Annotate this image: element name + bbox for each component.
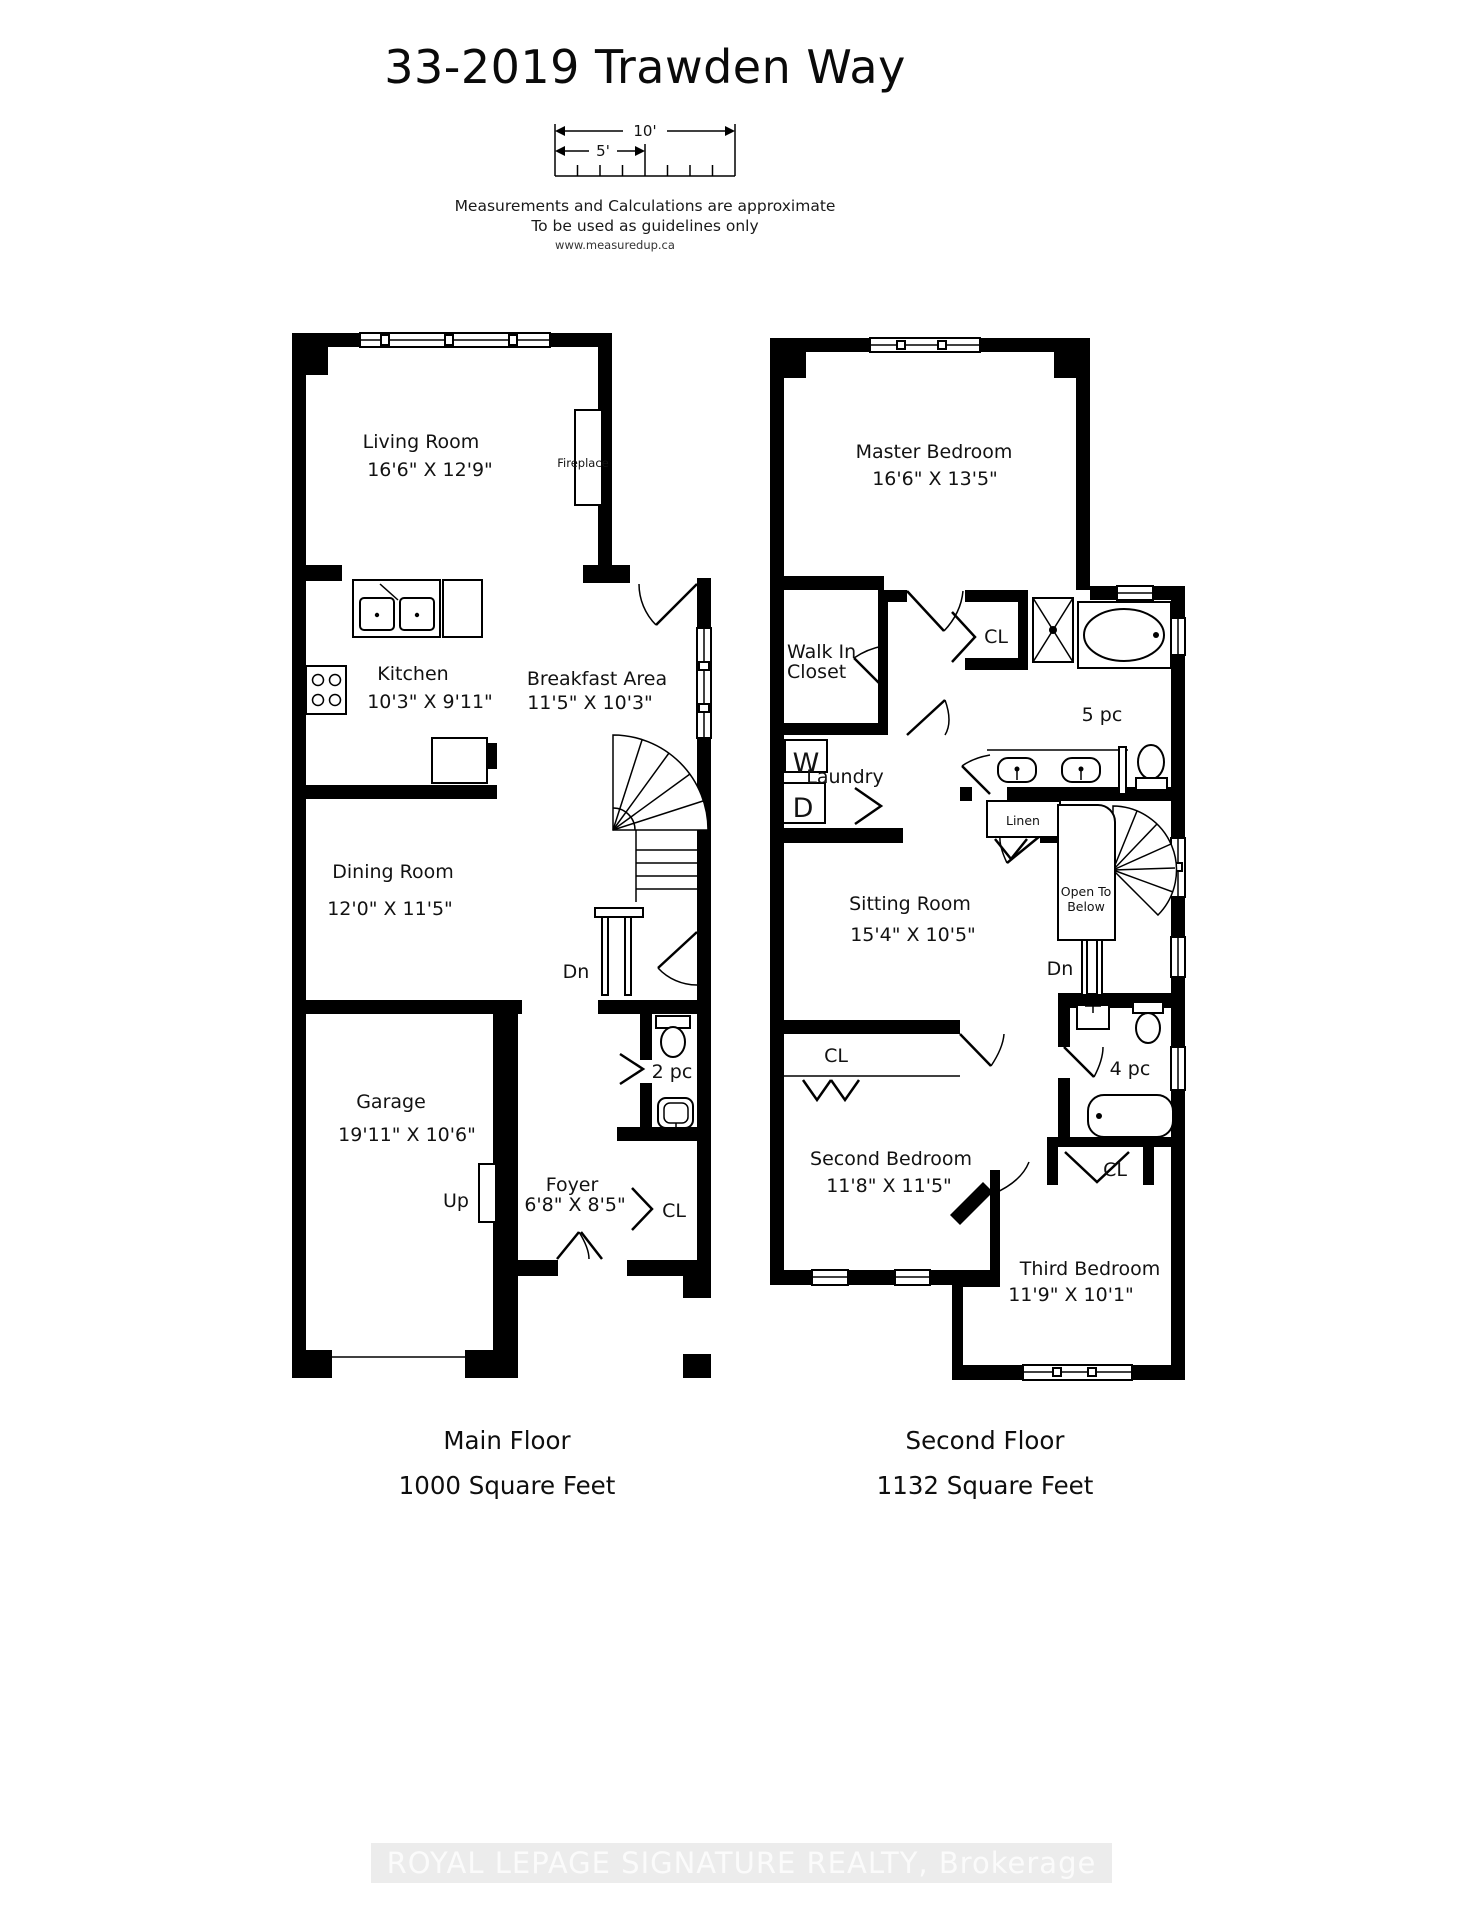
- main-stairs-icon: [595, 735, 708, 995]
- kitchen-peninsula: [432, 738, 497, 783]
- website-label: www.measuredup.ca: [315, 238, 915, 252]
- double-vanity-icon: [987, 747, 1128, 794]
- stairs-down-label: Dn: [563, 961, 590, 983]
- second-floor-caption: Second Floor 1132 Square Feet: [760, 1418, 1210, 1508]
- breakfast-door: [639, 584, 697, 625]
- breakfast-dims: 11'5" X 10'3": [527, 692, 653, 714]
- fireplace-label: Fireplace: [557, 456, 608, 470]
- page-title: 33-2019 Trawden Way: [0, 40, 1290, 94]
- brokerage-watermark: ROYAL LEPAGE SIGNATURE REALTY, Brokerage: [371, 1843, 1113, 1883]
- second-bedroom-label: Second Bedroom: [810, 1148, 972, 1170]
- bathroom-top-window: [1117, 586, 1153, 600]
- second-bedroom-closet: [784, 1076, 960, 1100]
- third-bedroom-window: [1023, 1365, 1132, 1380]
- laundry-door: [855, 788, 881, 824]
- powder-toilet-icon: [656, 1016, 690, 1057]
- kitchen-sink-icon: [353, 580, 482, 637]
- main-floor-caption-name: Main Floor: [282, 1418, 732, 1463]
- walk-in-closet-label-2: Closet: [787, 661, 846, 683]
- bath4-toilet-icon: [1133, 1002, 1163, 1043]
- walk-in-closet-label-1: Walk In: [787, 641, 856, 663]
- bath4-door: [1064, 1047, 1103, 1077]
- foyer-closet-label: CL: [662, 1200, 686, 1222]
- powder-door: [620, 1054, 643, 1084]
- kitchen-label: Kitchen: [377, 663, 448, 685]
- main-floor-caption-area: 1000 Square Feet: [282, 1463, 732, 1508]
- bath5-toilet-icon: [1136, 745, 1167, 790]
- bath4-label: 4 pc: [1110, 1058, 1151, 1080]
- foyer-closet-door: [632, 1188, 652, 1230]
- open-to-below-label-2: Below: [1067, 899, 1105, 914]
- breakfast-label: Breakfast Area: [527, 668, 667, 690]
- scale-ruler-graphic: 10' 5': [555, 122, 735, 176]
- master-bedroom-dims: 16'6" X 13'5": [872, 468, 998, 490]
- master-closet-label: CL: [984, 626, 1008, 648]
- main-floor-caption: Main Floor 1000 Square Feet: [282, 1418, 732, 1508]
- dining-room-dims: 12'0" X 11'5": [327, 898, 453, 920]
- third-bedroom-dims: 11'9" X 10'1": [1008, 1284, 1134, 1306]
- sitting-room-dims: 15'4" X 10'5": [850, 924, 976, 946]
- living-room-dims: 16'6" X 12'9": [367, 459, 493, 481]
- second-floor-caption-area: 1132 Square Feet: [760, 1463, 1210, 1508]
- bath4-tub-icon: [1088, 1095, 1173, 1137]
- master-door: [907, 591, 963, 631]
- stairs-down-label: Dn: [1047, 958, 1074, 980]
- scale-ruler: 10' 5': [545, 118, 745, 184]
- main-floor-plan: Living Room 16'6" X 12'9" Fireplace Kitc…: [280, 310, 740, 1400]
- second-bedroom-door: [960, 1034, 1004, 1066]
- garage-label: Garage: [356, 1091, 426, 1113]
- bath5-label: 5 pc: [1082, 704, 1123, 726]
- dining-room-label: Dining Room: [332, 861, 453, 883]
- scale-five-label: 5': [596, 142, 610, 160]
- front-entry-door: [557, 1232, 602, 1259]
- stove-icon: [306, 666, 346, 714]
- master-closet-door: [952, 612, 975, 662]
- garage-entry-door: [479, 1164, 496, 1222]
- stairs-up-label: Up: [443, 1190, 469, 1212]
- second-floor-caption-name: Second Floor: [760, 1418, 1210, 1463]
- linen-label: Linen: [1006, 813, 1040, 828]
- third-bedroom-closet-label: CL: [1103, 1159, 1127, 1181]
- living-room-window: [360, 333, 550, 347]
- second-bedroom-closet-label: CL: [824, 1045, 848, 1067]
- powder-sink-icon: [658, 1098, 693, 1128]
- living-room-label: Living Room: [363, 431, 480, 453]
- scale-ten-label: 10': [633, 122, 656, 140]
- foyer-label: Foyer: [546, 1174, 599, 1196]
- laundry-label: Laundry: [806, 766, 883, 788]
- shower-icon: [1033, 598, 1073, 662]
- dryer-label: D: [793, 793, 814, 824]
- floorplan-page: 33-2019 Trawden Way 10' 5' Measurements …: [0, 0, 1483, 1920]
- third-bedroom-label: Third Bedroom: [1019, 1258, 1160, 1280]
- disclaimer-line2: To be used as guidelines only: [345, 217, 945, 235]
- open-to-below-label-1: Open To: [1061, 884, 1112, 899]
- sitting-room-label: Sitting Room: [849, 893, 971, 915]
- main-floor-walls: [292, 333, 711, 1378]
- master-bedroom-window: [870, 338, 980, 352]
- watermark-row: ROYAL LEPAGE SIGNATURE REALTY, Brokerage: [0, 1843, 1483, 1883]
- powder-room-label: 2 pc: [652, 1061, 693, 1083]
- second-bedroom-dims: 11'8" X 11'5": [826, 1175, 952, 1197]
- hall-door: [907, 700, 949, 735]
- soaker-tub-icon: [1078, 602, 1171, 668]
- foyer-dims: 6'8" X 8'5": [524, 1194, 625, 1216]
- kitchen-dims: 10'3" X 9'11": [367, 691, 493, 713]
- breakfast-window: [697, 628, 711, 738]
- master-bedroom-label: Master Bedroom: [856, 441, 1013, 463]
- second-floor-plan: Master Bedroom 16'6" X 13'5" Walk In Clo…: [745, 310, 1205, 1400]
- garage-dims: 19'11" X 10'6": [338, 1124, 476, 1146]
- disclaimer-line1: Measurements and Calculations are approx…: [345, 197, 945, 215]
